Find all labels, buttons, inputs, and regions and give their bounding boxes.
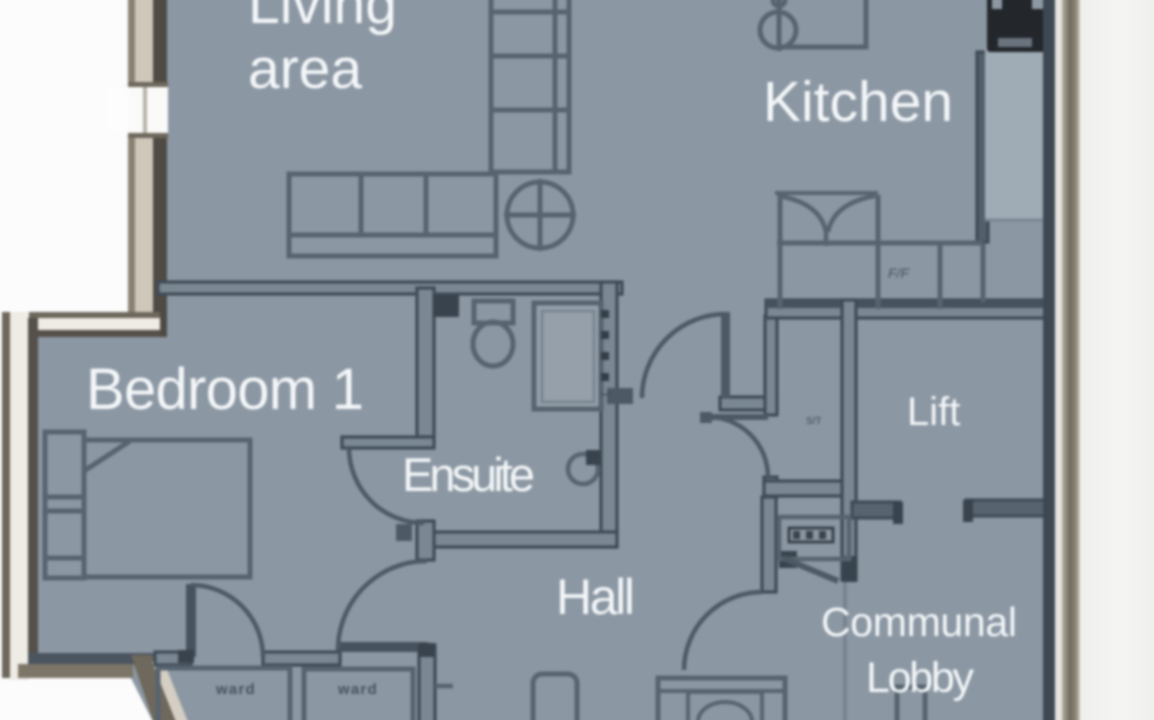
svg-text:ward: ward: [215, 681, 256, 698]
svg-text:Lift: Lift: [907, 390, 960, 434]
svg-text:Kitchen: Kitchen: [763, 70, 953, 134]
svg-text:F/F: F/F: [888, 265, 910, 281]
svg-text:Living: Living: [248, 0, 397, 36]
svg-text:S/T: S/T: [806, 416, 822, 427]
svg-text:area: area: [248, 37, 362, 101]
svg-text:Communal: Communal: [821, 599, 1017, 645]
svg-text:Bedroom 1: Bedroom 1: [86, 357, 364, 422]
svg-text:Ensuite: Ensuite: [402, 448, 535, 501]
svg-text:Hall: Hall: [556, 569, 635, 625]
svg-text:ward: ward: [337, 681, 378, 698]
svg-text:Lobby: Lobby: [866, 654, 975, 702]
